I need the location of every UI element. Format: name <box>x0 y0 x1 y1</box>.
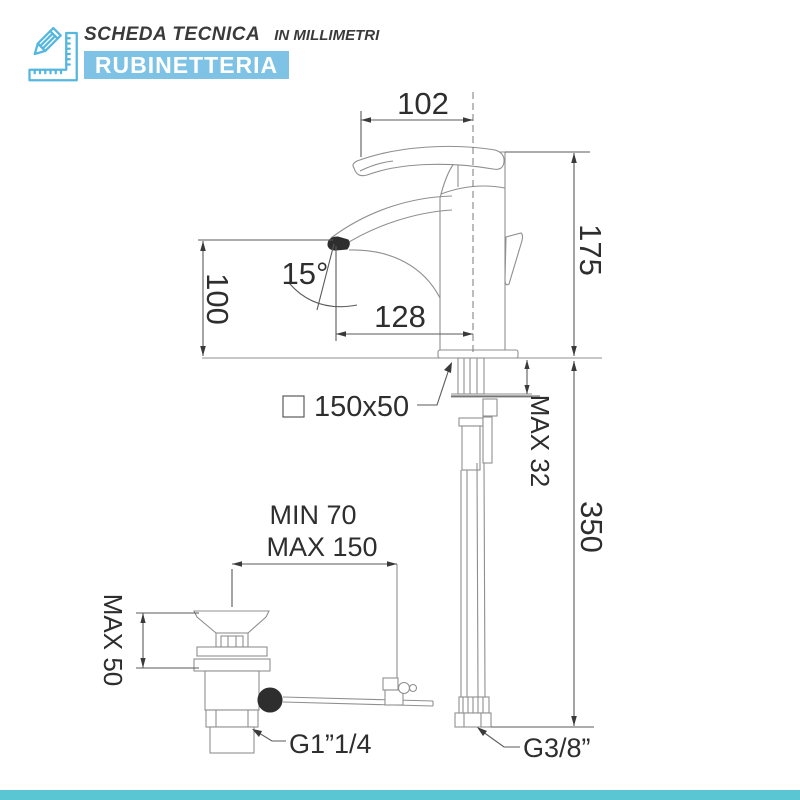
dim-supply-length: 350 <box>574 501 609 553</box>
square-symbol <box>283 396 304 417</box>
label-supply-thread: G3/8” <box>523 733 591 763</box>
drain-knob <box>258 688 282 712</box>
popup-rod <box>283 564 433 706</box>
dim-spout-angle: 15° <box>282 256 329 291</box>
dim-counter-thickness: MAX 32 <box>525 395 555 488</box>
spec-sheet-page: SCHEDA TECNICA IN MILLIMETRI RUBINETTERI… <box>0 0 800 800</box>
dim-rod-max: MAX 150 <box>266 532 377 562</box>
popup-drain <box>194 611 282 753</box>
hose-nut <box>455 713 491 727</box>
aerator-tip <box>328 237 349 250</box>
dim-drain-height: MAX 50 <box>98 594 128 687</box>
dim-mounting-hole: 150x50 <box>314 391 409 423</box>
technical-drawing: 102 175 100 15° 128 <box>0 0 800 800</box>
dim-spout-height: 100 <box>200 273 235 325</box>
dim-rod-min: MIN 70 <box>269 500 356 530</box>
dim-total-height: 175 <box>573 224 608 276</box>
dimension-annotations: 102 175 100 15° 128 <box>98 86 609 763</box>
dim-spout-reach: 102 <box>397 86 449 121</box>
footer-bar <box>0 790 800 800</box>
dim-tip-to-base: 128 <box>374 299 426 334</box>
label-drain-thread: G1”1/4 <box>289 729 372 759</box>
